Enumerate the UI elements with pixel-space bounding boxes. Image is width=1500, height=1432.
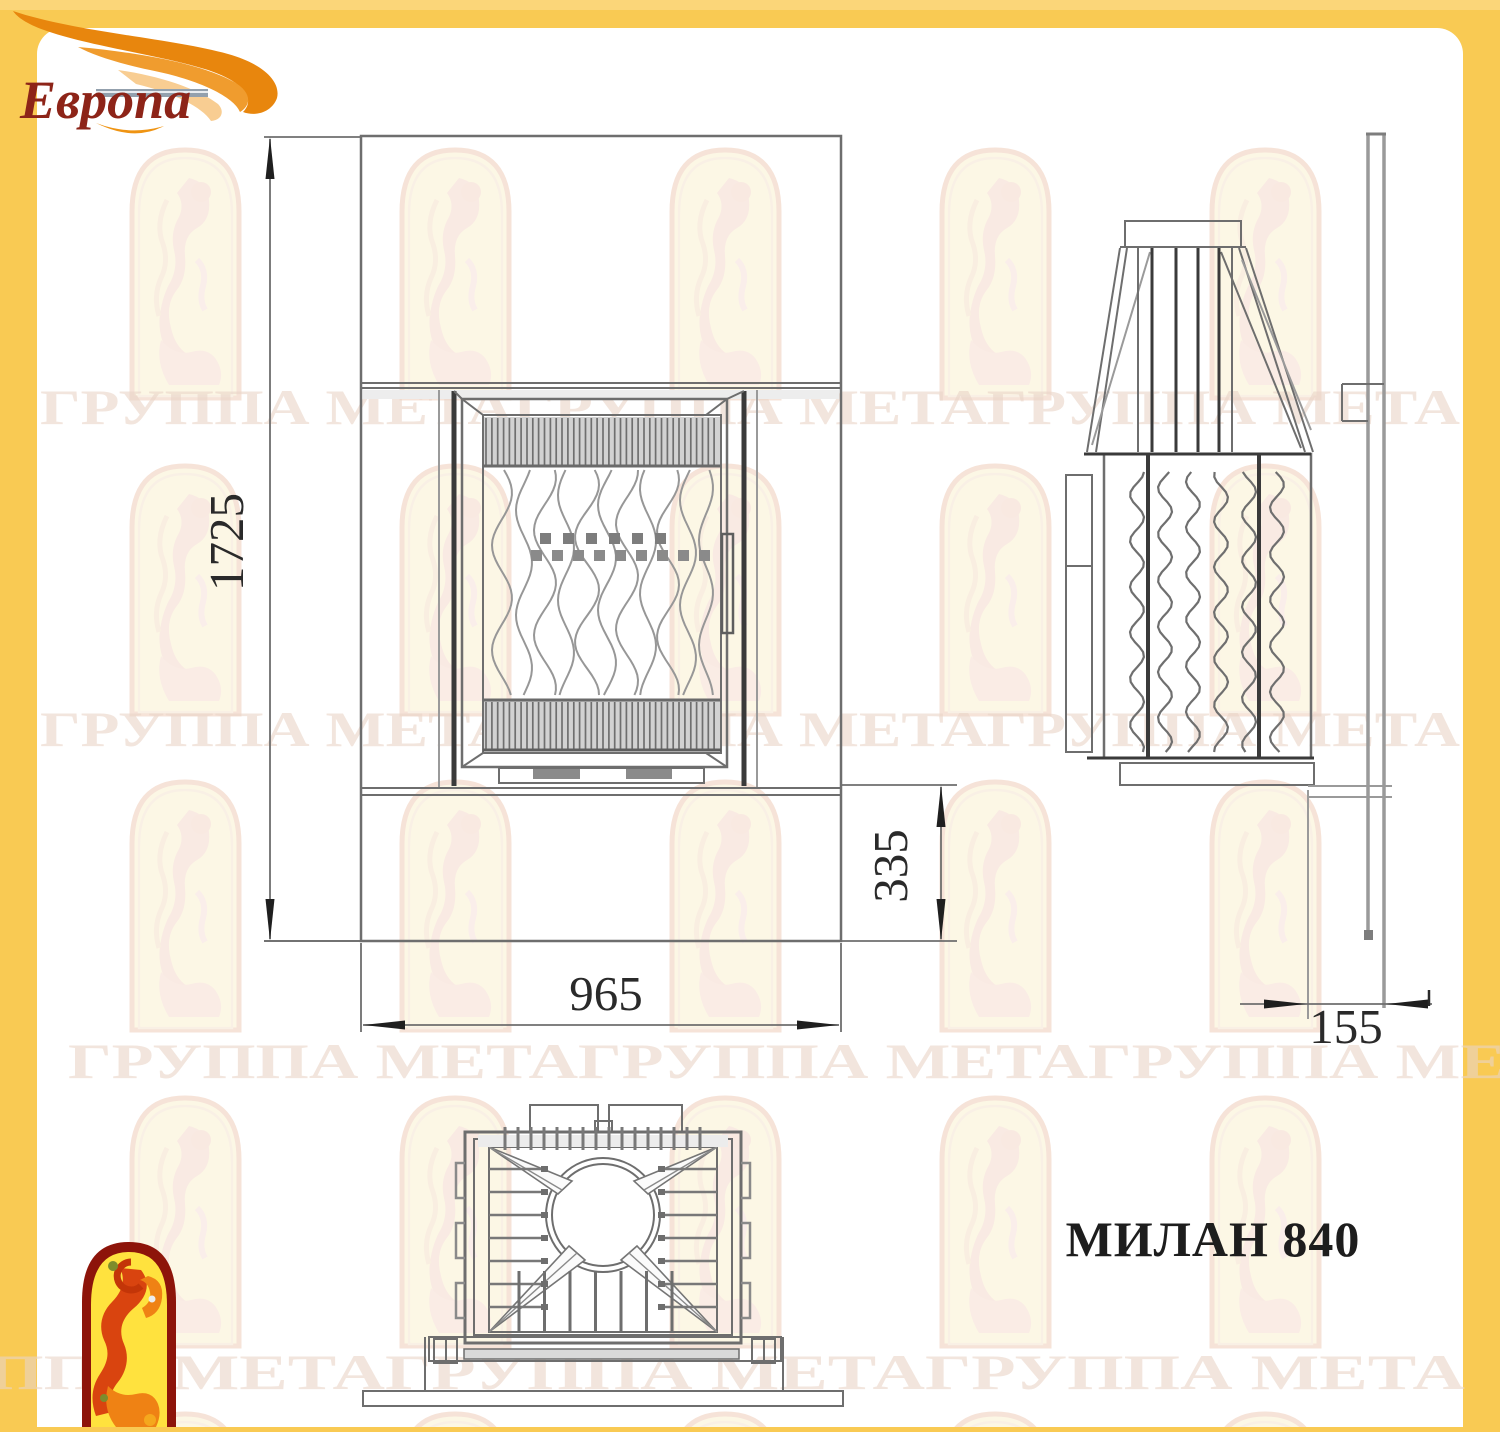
svg-text:Европа: Европа [19,70,191,130]
svg-text:335: 335 [863,829,918,903]
svg-text:1725: 1725 [199,493,254,591]
svg-text:ГРУППА МЕТАГРУППА МЕТАГРУППА М: ГРУППА МЕТАГРУППА МЕТАГРУППА МЕТА [68,1033,1500,1089]
svg-text:155: 155 [1309,999,1383,1054]
svg-text:МИЛАН 840: МИЛАН 840 [1066,1211,1361,1267]
svg-text:ГРУППА МЕТАГРУППА МЕТАГРУППА М: ГРУППА МЕТАГРУППА МЕТАГРУППА МЕТА [40,701,1460,757]
svg-text:965: 965 [569,966,643,1021]
